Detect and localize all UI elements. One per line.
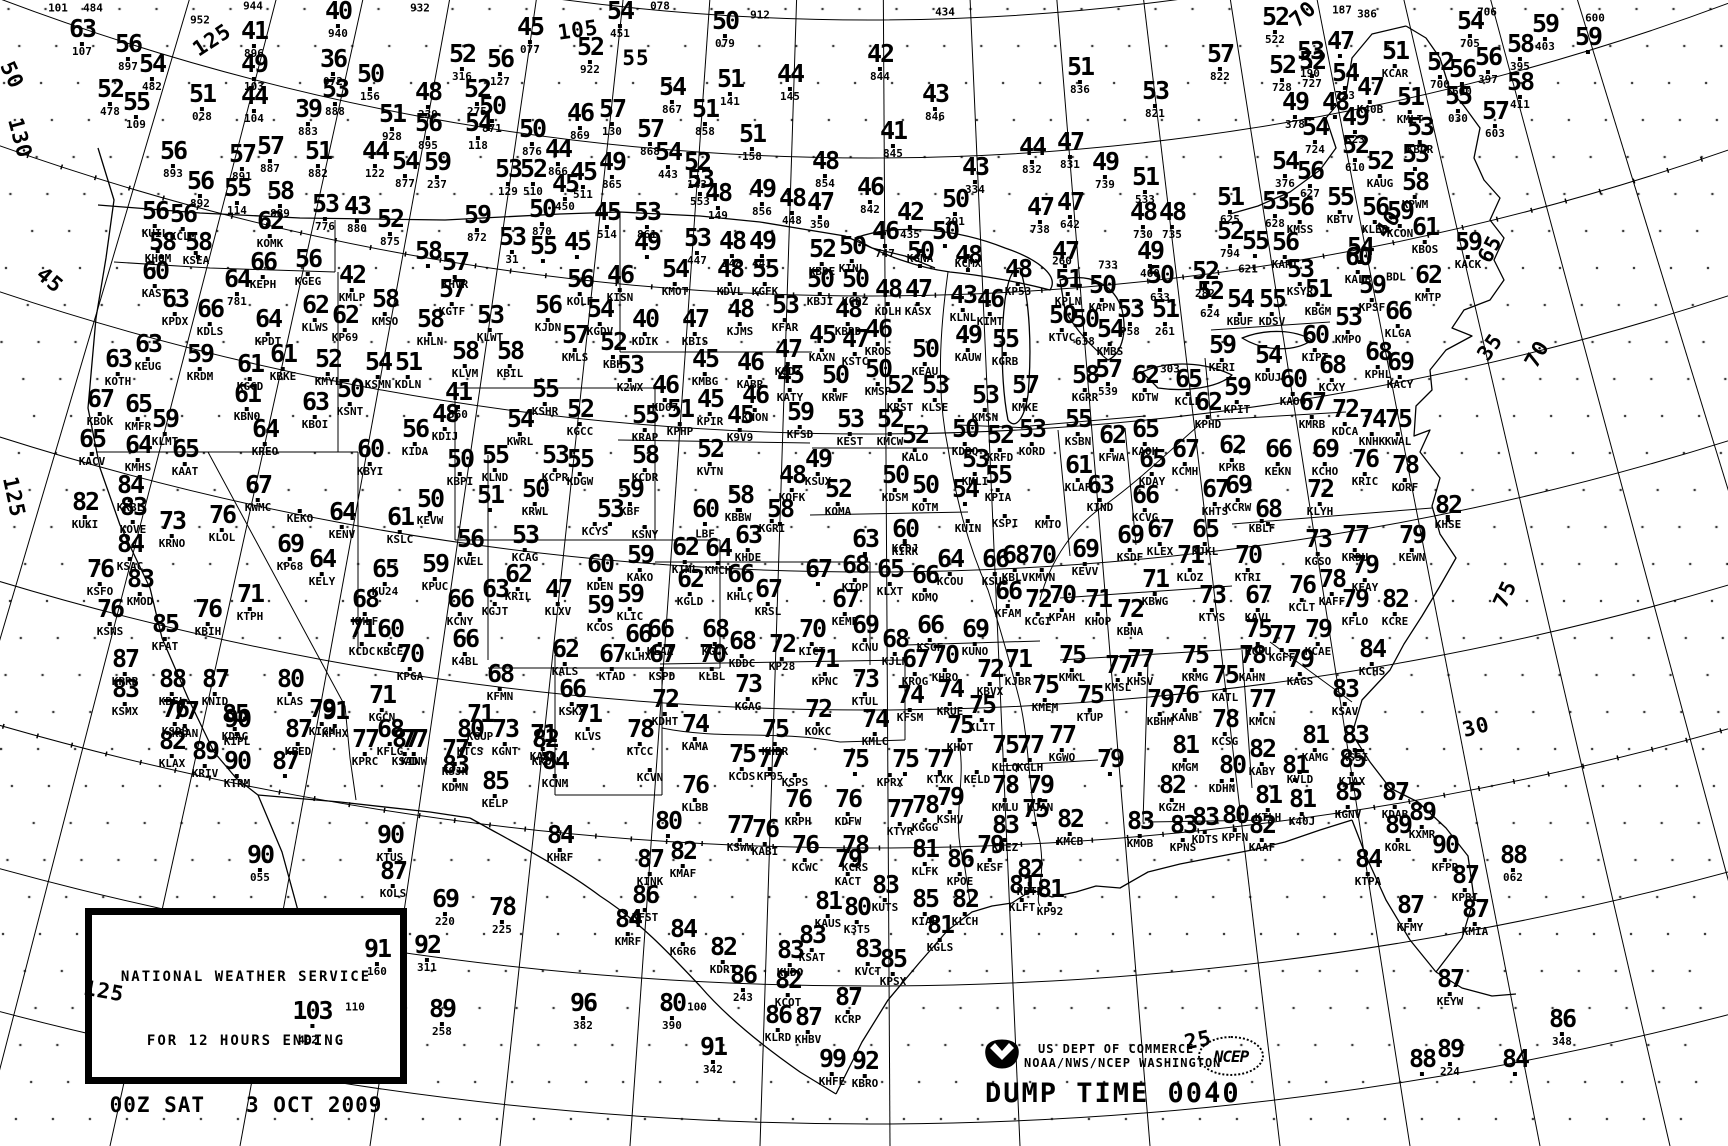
- station-plot-KMKE: 57KMKE: [1012, 374, 1039, 412]
- station-temp: 47: [1357, 76, 1384, 99]
- station-temp: 62: [552, 638, 579, 661]
- station-plot-KMOB: 83KMOB: [1127, 810, 1154, 848]
- station-temp: 76: [785, 788, 812, 811]
- station-temp: 54: [1097, 318, 1124, 341]
- station-id: KJDN: [535, 323, 562, 333]
- station-id: KWAL: [1385, 437, 1412, 447]
- station-plot-KALO: 52KALO: [902, 424, 929, 462]
- station-plot-KSBN: 55KSBN: [1065, 408, 1092, 446]
- station-plot: 87: [272, 750, 298, 779]
- station-temp: 52: [97, 78, 123, 101]
- station-temp: 56: [567, 268, 594, 291]
- station-id: 258: [429, 1027, 455, 1037]
- station-plot-layer: 6310756897544825247855109510284189649103…: [0, 0, 1728, 1146]
- station-temp: 63: [69, 18, 95, 41]
- station-temp: 83: [872, 874, 899, 897]
- station-temp: 73: [1199, 584, 1226, 607]
- station-id: KFAM: [995, 609, 1022, 619]
- station-temp: 51: [1067, 56, 1093, 79]
- station-id: KGAG: [735, 702, 762, 712]
- station-plot-610: 52610: [1342, 134, 1368, 172]
- station-temp: 64: [252, 418, 279, 441]
- station-temp: 79: [1342, 588, 1369, 611]
- station-temp: 79: [1147, 688, 1174, 711]
- graticule-label: 55: [622, 46, 649, 70]
- station-id: KELP: [482, 799, 509, 809]
- station-id: 243: [730, 993, 756, 1003]
- station-temp: 68: [352, 588, 379, 611]
- station-plot-KPIT: 59KPIT: [1224, 376, 1251, 414]
- station-plot-KACT: 79KACT: [835, 848, 862, 886]
- station-id: KSWW: [727, 843, 754, 853]
- station-plot-KRMG: 75KRMG: [1182, 644, 1209, 682]
- station-id: KLVS: [575, 732, 602, 742]
- station-temp: 42: [897, 201, 923, 224]
- station-id: KFLO: [1342, 617, 1369, 627]
- station-temp: 96: [570, 992, 596, 1015]
- misc-number: 101: [48, 2, 68, 15]
- station-temp: 92: [852, 1050, 879, 1073]
- station-temp: 81: [1009, 874, 1036, 897]
- station-temp: 71: [349, 618, 376, 641]
- station-id: KBHM: [1147, 717, 1174, 727]
- station-plot-KOMK: 62KOMK: [257, 210, 284, 248]
- station-plot-KEWN: 79KEWN: [1399, 524, 1426, 562]
- station-temp: 82: [1057, 808, 1084, 831]
- station-plot-KUNO: 69KUNO: [962, 618, 989, 656]
- station-temp: 72: [652, 688, 679, 711]
- station-temp: 87: [795, 1006, 822, 1029]
- station-plot-KLEX: 67KLEX: [1147, 518, 1174, 556]
- station-temp: 75: [762, 718, 789, 741]
- station-temp: 59: [1532, 13, 1558, 36]
- station-id: KIND: [1087, 503, 1114, 513]
- station-plot-KDGW: 55KDGW: [567, 448, 594, 486]
- station-plot-KCVN: KCVN: [637, 767, 664, 783]
- station-temp: 70: [1049, 584, 1076, 607]
- station-temp: 88: [159, 668, 186, 691]
- station-id: KHLN: [417, 337, 444, 347]
- station-id: KCDS: [729, 772, 756, 782]
- station-plot-079: 50079: [712, 10, 738, 48]
- station-temp: 50: [529, 198, 555, 221]
- station-id: 261: [1152, 327, 1178, 337]
- station-temp: 53: [1262, 190, 1288, 213]
- station-temp: 57: [257, 135, 283, 158]
- station-id: KPHP: [667, 427, 694, 437]
- station-temp: 79: [1097, 748, 1123, 771]
- station-id: KCRP: [835, 1015, 862, 1025]
- station-id: 31: [499, 255, 525, 265]
- station-plot-107: 63107: [69, 18, 95, 56]
- station-plot-KLND: 55KLND: [482, 444, 509, 482]
- station-plot-KUTS: 83KUTS: [872, 874, 899, 912]
- station-id: KLFK: [912, 867, 939, 877]
- station-plot-KAMA: 74KAMA: [682, 713, 709, 751]
- station-temp: 75: [842, 748, 868, 771]
- station-id: KEKO: [287, 514, 314, 524]
- station-temp: 67: [832, 588, 859, 611]
- station-id: KLBB: [682, 803, 709, 813]
- station-temp: 44: [241, 85, 267, 108]
- station-temp: 61: [237, 353, 264, 376]
- station-temp: 69: [852, 614, 879, 637]
- station-plot-KEKN: 66KEKN: [1265, 438, 1292, 476]
- station-temp: 72: [1117, 598, 1144, 621]
- station-temp: 54: [952, 478, 978, 501]
- station-plot-KP69: 62KP69: [332, 304, 359, 342]
- station-temp: 54: [607, 0, 633, 23]
- station-id: 893: [160, 169, 186, 179]
- station-id: 403: [1532, 42, 1558, 52]
- station-id: KJBR: [1005, 677, 1032, 687]
- station-id: KRWF: [822, 393, 849, 403]
- station-plot-KGWO: 77KGWO: [1049, 724, 1076, 762]
- station-plot-KFAR: 53KFAR: [772, 294, 799, 332]
- station-plot-KTAD: 67KTAD: [599, 643, 626, 681]
- station-id: KORL: [1385, 843, 1412, 853]
- station-temp: 84: [542, 750, 569, 773]
- station-plot-KHRF: 84KHRF: [547, 824, 574, 862]
- station-plot-KSNT: 50KSNT: [337, 378, 364, 416]
- station-plot-822: 57822: [1207, 43, 1233, 81]
- station-plot-KIND: 63KIND: [1087, 474, 1114, 512]
- station-temp: 59: [464, 204, 490, 227]
- station-plot-397: 56397: [1475, 46, 1501, 84]
- station-plot-KPUC: 59KPUC: [422, 553, 449, 591]
- station-id: 724: [1302, 145, 1328, 155]
- station-plot-KDTS: 83KDTS: [1192, 806, 1219, 844]
- station-temp: 62: [677, 568, 704, 591]
- station-plot-KELY: 64KELY: [309, 548, 336, 586]
- station-temp: 78: [489, 896, 515, 919]
- station-temp: 48: [779, 187, 805, 210]
- station-temp: 85: [482, 770, 509, 793]
- station-temp: 50: [522, 478, 549, 501]
- station-plot: 58: [415, 240, 441, 269]
- station-temp: 51: [1382, 40, 1409, 63]
- station-plot: 80: [655, 810, 681, 839]
- station-temp: 49: [1342, 106, 1368, 129]
- station-plot-435: 42435: [897, 201, 923, 239]
- station-id: KCNM: [542, 779, 569, 789]
- station-id: KAHN: [1239, 673, 1266, 683]
- station-temp: 73: [492, 718, 519, 741]
- station-temp: 84: [1355, 848, 1382, 871]
- station-id: 844: [867, 72, 893, 82]
- station-temp: 49: [805, 448, 832, 471]
- station-temp: 50: [912, 474, 939, 497]
- station-temp: 42: [339, 264, 366, 287]
- station-plot-225: 78225: [489, 896, 515, 934]
- station-id: 872: [464, 233, 490, 243]
- station-id: KMSO: [372, 317, 399, 327]
- station-temp: 55: [482, 444, 509, 467]
- station-id: KMKE: [1012, 403, 1039, 413]
- station-temp: 56: [115, 33, 141, 56]
- station-temp: 68: [729, 630, 756, 653]
- station-plot-237: 59237: [424, 151, 450, 189]
- station-plot-282: 52282: [1192, 260, 1218, 298]
- station-plot: 59: [1575, 26, 1601, 55]
- station-id: KSNY: [632, 530, 659, 540]
- station-id: 107: [69, 47, 95, 57]
- station-plot-KTPH: 71KTPH: [237, 583, 264, 621]
- station-plot-KSNY: KSNY: [632, 524, 659, 540]
- station-id: 739: [1092, 180, 1118, 190]
- station-id: KSMN: [365, 380, 392, 390]
- station-temp: 52: [1262, 6, 1288, 29]
- station-id: KCNU: [852, 643, 879, 653]
- station-temp: 90: [224, 750, 251, 773]
- station-temp: 51: [739, 123, 765, 146]
- station-id: KBYI: [357, 467, 384, 477]
- station-id: KVTN: [697, 467, 724, 477]
- station-temp: 47: [775, 338, 802, 361]
- station-id: KPHX: [322, 729, 349, 739]
- station-temp: 83: [1127, 810, 1154, 833]
- station-plot-KGRI: KGRI: [759, 518, 786, 534]
- station-temp: 79: [977, 834, 1004, 857]
- station-temp: 66: [250, 251, 277, 274]
- station-temp: 79: [1305, 618, 1332, 641]
- station-plot-KJBR: 71KJBR: [1005, 648, 1032, 686]
- station-temp: 47: [682, 308, 709, 331]
- station-plot-KCRP: 87KCRP: [835, 986, 862, 1024]
- station-id: KHBV: [795, 1035, 822, 1045]
- station-id: KHFE: [819, 1077, 846, 1087]
- station-plot-KRAP: 55KRAP: [632, 404, 659, 442]
- station-temp: 56: [295, 248, 322, 271]
- station-temp: 76: [752, 818, 779, 841]
- station-plot-350: 47350: [807, 191, 833, 229]
- station-plot-KFWA: 62KFWA: [1099, 424, 1126, 462]
- station-temp: 76: [209, 504, 236, 527]
- station-plot-KASX: 47KASX: [905, 278, 932, 316]
- station-plot-KMBG: 45KMBG: [692, 348, 719, 386]
- station-temp: 52: [987, 424, 1014, 447]
- station-temp: 57: [229, 143, 255, 166]
- station-plot-KCYS: KCYS: [582, 521, 609, 537]
- station-id: KFAR: [772, 323, 799, 333]
- station-temp: 50: [952, 418, 979, 441]
- station-plot-411: 58411: [1507, 71, 1533, 109]
- station-plot-KALS: 62KALS: [552, 638, 579, 676]
- station-plot-482: 54482: [139, 53, 165, 91]
- station-temp: 43: [962, 156, 988, 179]
- station-id: KLRD: [765, 1033, 792, 1043]
- station-plot-KVLD: KVLD: [1287, 769, 1314, 785]
- station-id: KMTO: [1035, 520, 1062, 530]
- station-id: KEYW: [1437, 997, 1464, 1007]
- station-plot-KANB: 76KANB: [1172, 684, 1199, 722]
- station-plot-KRIV: 89KRIV: [192, 740, 219, 778]
- station-temp: 54: [659, 76, 685, 99]
- station-temp: 75: [1022, 798, 1048, 821]
- station-temp: 87: [1452, 864, 1479, 887]
- station-plot-KPDX: 63KPDX: [162, 288, 189, 326]
- station-id: KBUF: [1227, 317, 1254, 327]
- station-temp: 77: [1049, 724, 1076, 747]
- station-plot-KLLQ: 75KLLQ: [992, 734, 1019, 772]
- station-plot-724: 54724: [1302, 116, 1328, 154]
- station-plot-KJDN: 56KJDN: [535, 294, 562, 332]
- station-plot-KPIR: 45KPIR: [697, 388, 724, 426]
- station-temp: 52: [825, 478, 852, 501]
- station-temp: 75: [729, 743, 756, 766]
- station-plot-845: 41845: [880, 120, 906, 158]
- station-id: 225: [489, 925, 515, 935]
- station-plot-KMHS: 64KMHS: [125, 434, 152, 472]
- station-plot-KOLS: 87KOLS: [380, 860, 407, 898]
- station-temp: 67: [755, 578, 782, 601]
- station-temp: 82: [1249, 738, 1276, 761]
- station-id: KESF: [977, 863, 1004, 873]
- misc-number: 100: [687, 1001, 707, 1014]
- station-plot-342: 91342: [700, 1036, 726, 1074]
- graticule-label: 25: [1182, 1025, 1214, 1054]
- graticule-label: 70: [1520, 336, 1554, 372]
- station-temp: 47: [1027, 196, 1053, 219]
- station-id: 781: [224, 297, 250, 307]
- station-temp: 71: [1142, 568, 1169, 591]
- station-temp: 46: [567, 102, 593, 125]
- station-plot-KGNV: 85KGNV: [1335, 781, 1362, 819]
- station-plot-KTCC: 78KTCC: [627, 718, 654, 756]
- station-temp: 63: [135, 333, 162, 356]
- station-temp: 48: [779, 464, 806, 487]
- station-temp: 63: [852, 528, 878, 551]
- station-temp: 48: [1005, 258, 1032, 281]
- station-temp: 63: [735, 524, 762, 547]
- station-id: 450: [552, 202, 578, 212]
- station-temp: 53: [1142, 80, 1168, 103]
- station-temp: 59: [422, 553, 449, 576]
- station-plot-KPRC: 77KPRC: [352, 728, 379, 766]
- station-plot-KEYW: 87KEYW: [1437, 968, 1464, 1006]
- station-temp: 58: [415, 240, 441, 263]
- misc-number: 386: [1357, 8, 1377, 21]
- station-temp: 82: [710, 936, 737, 959]
- station-temp: 48: [719, 230, 745, 253]
- station-id: 638: [1072, 337, 1098, 347]
- station-temp: 56: [535, 294, 562, 317]
- station-temp: 79: [1399, 524, 1426, 547]
- station-temp: 62: [1415, 264, 1442, 287]
- station-plot-KMLS: 57KMLS: [562, 324, 589, 362]
- station-id: 149: [705, 211, 731, 221]
- station-id: KHRF: [547, 853, 574, 863]
- station-id: KLFT: [1009, 903, 1036, 913]
- station-temp: 54: [587, 298, 614, 321]
- station-plot-478: 52478: [97, 78, 123, 116]
- station-id: KDUJ: [1255, 373, 1282, 383]
- station-id: KPFN: [1222, 833, 1249, 843]
- station-temp: 49: [749, 230, 775, 253]
- station-id: KAUW: [955, 353, 982, 363]
- station-temp: 60: [1345, 246, 1372, 269]
- station-temp: 59: [1575, 26, 1601, 49]
- station-temp: 66: [995, 580, 1022, 603]
- station-temp: 75: [1077, 684, 1104, 707]
- station-id: KPIT: [1224, 405, 1251, 415]
- station-temp: 69: [432, 888, 458, 911]
- station-temp: 91: [322, 700, 349, 723]
- station-temp: 48: [705, 182, 731, 205]
- station-id: KLEX: [1147, 547, 1174, 557]
- station-id: KLAX: [159, 759, 186, 769]
- station-temp: 65: [372, 558, 399, 581]
- station-temp: 54: [662, 258, 689, 281]
- station-temp: 45: [552, 173, 578, 196]
- station-id: KMCN: [1249, 717, 1276, 727]
- station-temp: 62: [257, 210, 284, 233]
- station-id: 877: [392, 179, 418, 189]
- station-plot-895: 56895: [415, 112, 441, 150]
- station-id: KACY: [1387, 380, 1414, 390]
- station-plot-KWRL: 54KWRL: [507, 408, 534, 446]
- station-temp: 53: [499, 226, 525, 249]
- station-id: KSDF: [1117, 553, 1144, 563]
- station-plot-KOTH: 63KOTH: [105, 348, 132, 386]
- station-plot-261: 51261: [1152, 298, 1178, 336]
- graticule-label: 70: [1285, 0, 1321, 32]
- station-id: 342: [700, 1065, 726, 1075]
- station-temp: 50: [447, 448, 474, 471]
- station-temp: 49: [1282, 91, 1308, 114]
- station-temp: 54: [1272, 150, 1298, 173]
- station-plot: 67: [805, 558, 831, 587]
- station-temp: 85: [912, 888, 939, 911]
- station-temp: 52: [449, 43, 475, 66]
- station-plot-129: 53129: [495, 158, 521, 196]
- station-temp: 56: [1297, 160, 1323, 183]
- station-temp: 66: [1385, 300, 1412, 323]
- station-id: KPRC: [352, 757, 379, 767]
- station-temp: 56: [1287, 196, 1314, 219]
- station-plot-KAKO: 59KAKO: [627, 544, 654, 582]
- station-temp: 60: [1302, 324, 1329, 347]
- station-temp: 77: [1342, 524, 1369, 547]
- station-plot-KBUF: 54KBUF: [1227, 288, 1254, 326]
- station-id: 109: [123, 120, 149, 130]
- station-plot-KDMN: 83KDMN: [442, 754, 469, 792]
- station-temp: 52: [887, 374, 914, 397]
- station-temp: 51: [1397, 86, 1424, 109]
- station-plot-KMKL: 75KMKL: [1059, 644, 1086, 682]
- misc-number: 952: [190, 14, 210, 27]
- station-id: K3T5: [844, 925, 871, 935]
- station-id: 832: [1019, 165, 1045, 175]
- misc-number: LBF: [695, 528, 715, 541]
- station-plot-KGLH: 77KGLH: [1017, 734, 1044, 772]
- station-plot-258: 89258: [429, 998, 455, 1036]
- station-plot-844: 42844: [867, 43, 893, 81]
- station-temp: 67: [245, 474, 272, 497]
- station-temp: 72: [805, 698, 832, 721]
- station-plot-KRWL: 50KRWL: [522, 478, 549, 516]
- station-temp: 83: [855, 938, 882, 961]
- station-plot: 51: [477, 484, 503, 513]
- station-id: KOMA: [825, 507, 852, 517]
- station-id: 443: [655, 170, 681, 180]
- station-id: 141: [717, 97, 743, 107]
- station-id: KFWA: [1099, 453, 1126, 463]
- station-temp: 84: [670, 918, 697, 941]
- station-plot-KHBV: 87KHBV: [795, 1006, 822, 1044]
- station-temp: 70: [1235, 544, 1262, 567]
- station-id: KLBL: [699, 672, 726, 682]
